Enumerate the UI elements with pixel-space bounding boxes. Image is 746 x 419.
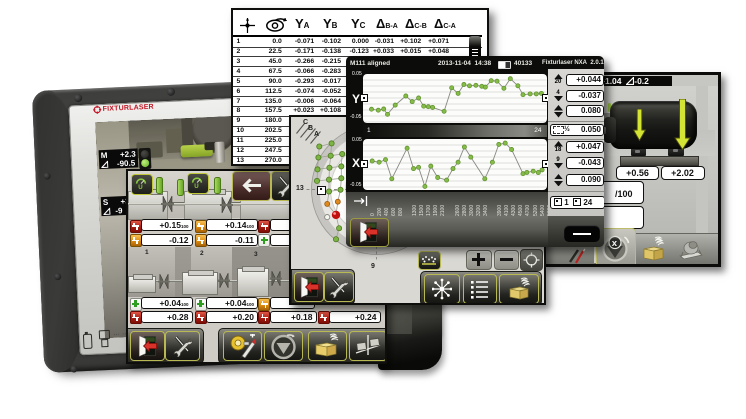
svg-text:U: U (138, 183, 143, 190)
svg-text:U: U (194, 182, 199, 189)
svg-text:x: x (612, 238, 618, 249)
